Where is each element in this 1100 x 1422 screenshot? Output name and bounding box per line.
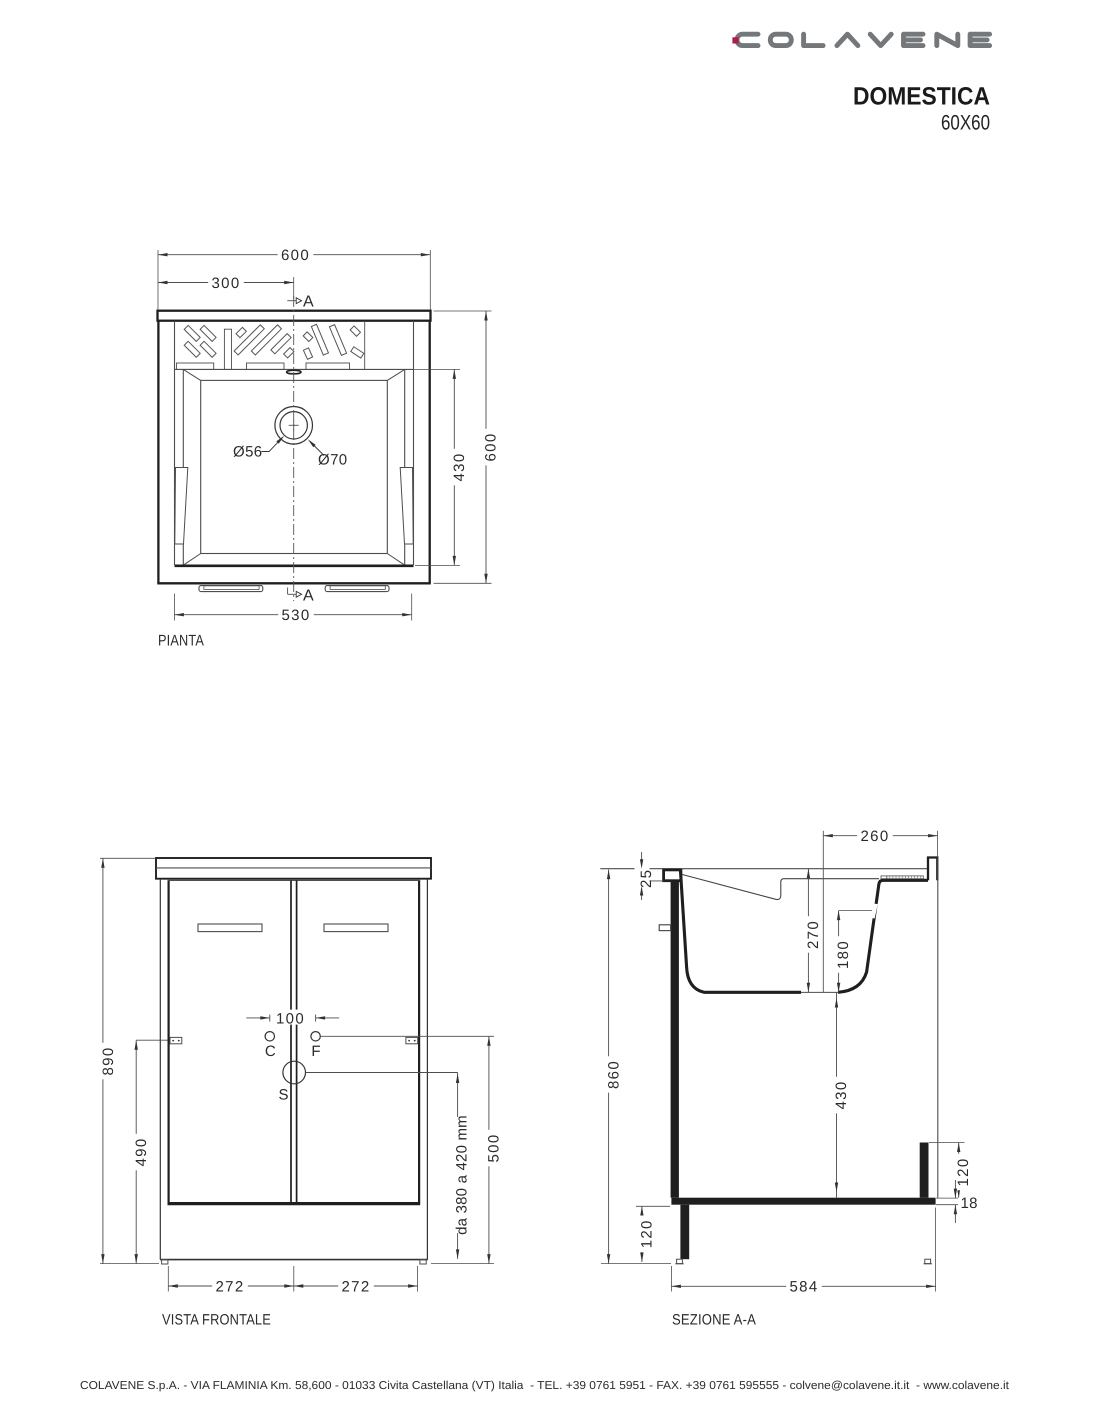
svg-text:180: 180: [835, 940, 852, 969]
svg-text:25: 25: [638, 869, 655, 888]
svg-text:300: 300: [212, 275, 241, 292]
svg-text:Ø56: Ø56: [233, 444, 263, 461]
svg-text:F: F: [311, 1043, 320, 1060]
svg-text:430: 430: [833, 1081, 850, 1110]
svg-text:500: 500: [486, 1134, 503, 1163]
svg-text:890: 890: [100, 1047, 117, 1076]
svg-text:272: 272: [342, 1278, 371, 1295]
svg-text:860: 860: [606, 1060, 623, 1089]
svg-text:PIANTA: PIANTA: [158, 633, 204, 650]
svg-text:600: 600: [483, 433, 500, 462]
svg-text:600: 600: [281, 247, 310, 264]
svg-text:DOMESTICA: DOMESTICA: [853, 83, 990, 111]
svg-text:SEZIONE A-A: SEZIONE A-A: [672, 1312, 756, 1329]
svg-text:100: 100: [276, 1010, 305, 1027]
svg-text:120: 120: [638, 1219, 655, 1248]
svg-text:584: 584: [790, 1279, 819, 1296]
svg-text:S: S: [278, 1087, 288, 1104]
svg-text:A: A: [303, 588, 314, 605]
svg-text:530: 530: [282, 607, 311, 624]
svg-text:120: 120: [955, 1158, 972, 1187]
svg-text:260: 260: [861, 828, 890, 845]
svg-text:18: 18: [961, 1195, 978, 1212]
svg-text:C: C: [265, 1043, 276, 1060]
svg-text:COLAVENE S.p.A. - VIA FLAMINIA: COLAVENE S.p.A. - VIA FLAMINIA Km. 58,60…: [80, 1380, 1010, 1392]
svg-text:60X60: 60X60: [941, 112, 990, 135]
svg-text:490: 490: [133, 1138, 150, 1167]
svg-text:da 380 a 420 mm: da 380 a 420 mm: [454, 1115, 471, 1235]
svg-text:272: 272: [216, 1278, 245, 1295]
svg-text:430: 430: [451, 453, 468, 482]
svg-text:VISTA FRONTALE: VISTA FRONTALE: [162, 1312, 271, 1329]
svg-text:270: 270: [805, 920, 822, 949]
svg-text:A: A: [303, 294, 314, 311]
